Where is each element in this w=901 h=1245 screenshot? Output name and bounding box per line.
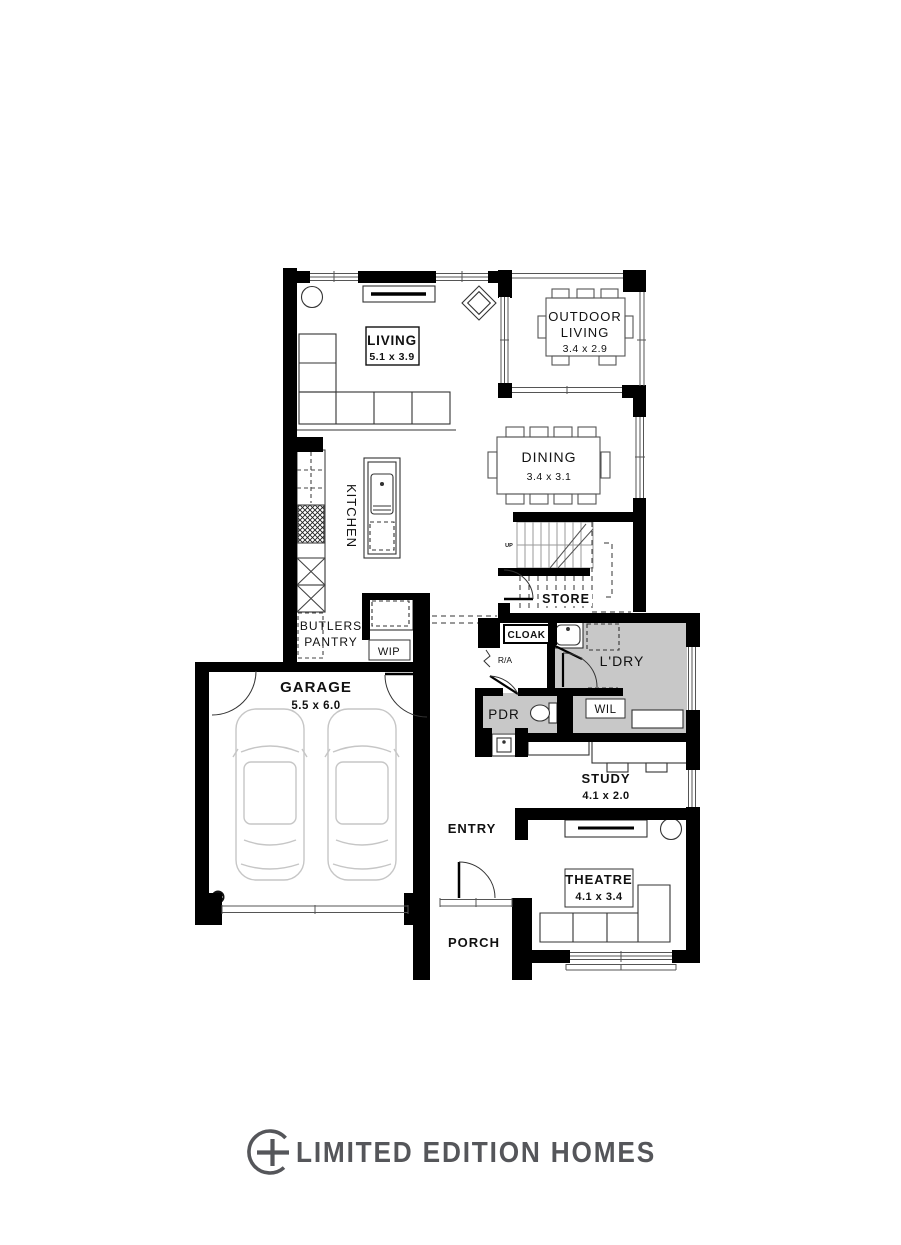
theatre-deck xyxy=(566,964,676,970)
garage-left-door xyxy=(212,670,256,715)
study-window xyxy=(687,770,699,807)
kitchen-label: KITCHEN xyxy=(344,484,359,548)
laundry-bench xyxy=(632,710,683,728)
living-outdoor-window xyxy=(499,297,510,383)
outdoor-right-screen xyxy=(637,292,646,386)
powder-label: PDR xyxy=(488,707,520,722)
theatre-dims: 4.1 x 3.4 xyxy=(575,891,623,903)
outdoor-living-label-2: LIVING xyxy=(561,325,610,340)
laundry-sink xyxy=(553,622,583,648)
living-window-2 xyxy=(436,270,488,283)
basin-icon xyxy=(492,734,516,756)
brand-wordmark: LIMITED EDITION HOMES xyxy=(296,1137,656,1169)
garage-door xyxy=(222,905,408,914)
theatre-tv xyxy=(565,820,647,837)
dining-label: DINING xyxy=(522,449,577,465)
laundry-window xyxy=(687,647,699,710)
outdoor-living-dims: 3.4 x 2.9 xyxy=(563,343,608,355)
entry-sill xyxy=(440,898,512,907)
entry-door xyxy=(459,862,495,898)
wip-label: WIP xyxy=(378,646,400,658)
study-desk xyxy=(528,738,688,772)
entry-label: ENTRY xyxy=(448,821,497,836)
outdoor-top-edge xyxy=(512,274,623,279)
outdoor-living-label-1: OUTDOOR xyxy=(548,309,621,324)
kitchen-island xyxy=(364,458,400,558)
brand-logo-icon xyxy=(249,1131,289,1173)
theatre-label: THEATRE xyxy=(565,872,632,887)
garage-label: GARAGE xyxy=(280,679,352,696)
plant-icon xyxy=(302,287,323,308)
porch-label: PORCH xyxy=(448,935,500,950)
study-label: STUDY xyxy=(581,771,630,786)
stairs xyxy=(517,522,593,568)
stairs-up-label: UP xyxy=(505,543,513,549)
cloak-label: CLOAK xyxy=(507,630,545,641)
toilet-icon xyxy=(531,703,558,723)
stair-landing-bracket xyxy=(604,543,612,597)
garage-dims: 5.5 x 6.0 xyxy=(291,700,340,712)
butlers-pantry-label-1: BUTLERS xyxy=(300,619,362,633)
wip-bench xyxy=(368,597,413,630)
study-dims: 4.1 x 2.0 xyxy=(582,790,629,802)
floorplan-canvas: LIVING 5.1 x 3.9 OUTDOOR LIVING 3.4 x 2.… xyxy=(0,0,901,1245)
outdoor-slider xyxy=(512,386,622,394)
dining-table xyxy=(488,427,610,504)
living-tv xyxy=(363,286,435,302)
butlers-pantry-label-2: PANTRY xyxy=(304,635,358,649)
living-dims: 5.1 x 3.9 xyxy=(369,351,414,363)
corner-speaker xyxy=(462,286,496,320)
return-air-label: R/A xyxy=(498,655,513,665)
theatre-window xyxy=(570,950,672,963)
garage-cars xyxy=(233,709,399,880)
linen-label: WIL xyxy=(595,704,617,716)
living-window-1 xyxy=(310,270,358,283)
theatre-lamp xyxy=(661,819,682,840)
brand-footer: LIMITED EDITION HOMES xyxy=(249,1131,656,1173)
return-air-squiggle xyxy=(484,650,490,667)
dining-dims: 3.4 x 3.1 xyxy=(527,471,572,483)
store-label: STORE xyxy=(542,592,590,606)
dining-window xyxy=(634,417,645,498)
living-label: LIVING xyxy=(367,333,417,348)
laundry-label: L'DRY xyxy=(600,653,645,669)
